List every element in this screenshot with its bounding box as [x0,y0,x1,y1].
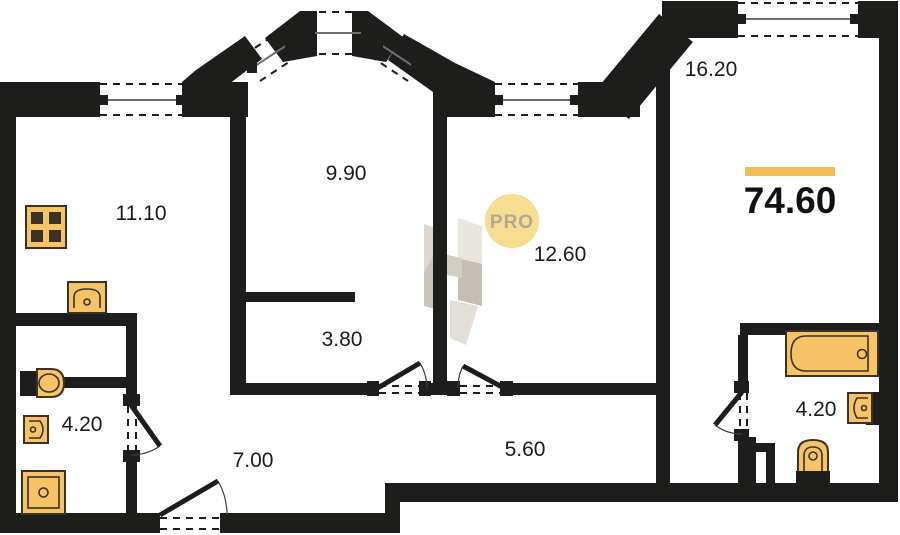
toilet-left-icon [20,369,64,397]
door-entrance [148,481,232,533]
door-bathroom-right [715,381,749,441]
pro-badge: PRO [485,194,539,248]
room-label-living-room: 16.20 [685,58,738,81]
floorplan-svg: 11.10 9.90 12.60 16.20 3.80 4.20 7.00 5.… [0,0,900,535]
h-logo-watermark [424,218,482,345]
total-area-label: 74.60 [744,180,837,221]
shower-icon [22,471,65,514]
room-label-hallway: 7.00 [233,449,274,472]
washbasin-left-icon [24,416,48,443]
door-bathroom-left [123,394,160,462]
window-middle-bedroom [493,84,580,115]
window-kitchen [98,84,186,115]
room-label-bathroom-left: 4.20 [62,413,103,436]
floorplan-page: 11.10 9.90 12.60 16.20 3.80 4.20 7.00 5.… [0,0,900,535]
bathtub-icon [786,331,878,376]
window-living-room [736,3,860,36]
room-label-corridor: 5.60 [505,438,546,461]
room-label-closet: 3.80 [322,328,363,351]
door-middle-bedroom [447,366,513,396]
room-label-bedroom-bay: 9.90 [326,162,367,185]
kitchen-sink-icon [68,282,106,313]
total-area-accent-bar [745,167,835,176]
sink-right-icon [848,393,872,423]
room-label-kitchen: 11.10 [116,202,167,225]
door-closet [367,363,431,396]
pro-badge-label: PRO [490,212,534,233]
stove-icon [26,206,66,248]
room-label-bathroom-right: 4.20 [796,398,837,421]
toilet-right-icon [796,440,830,485]
room-label-bedroom-middle: 12.60 [534,243,587,266]
